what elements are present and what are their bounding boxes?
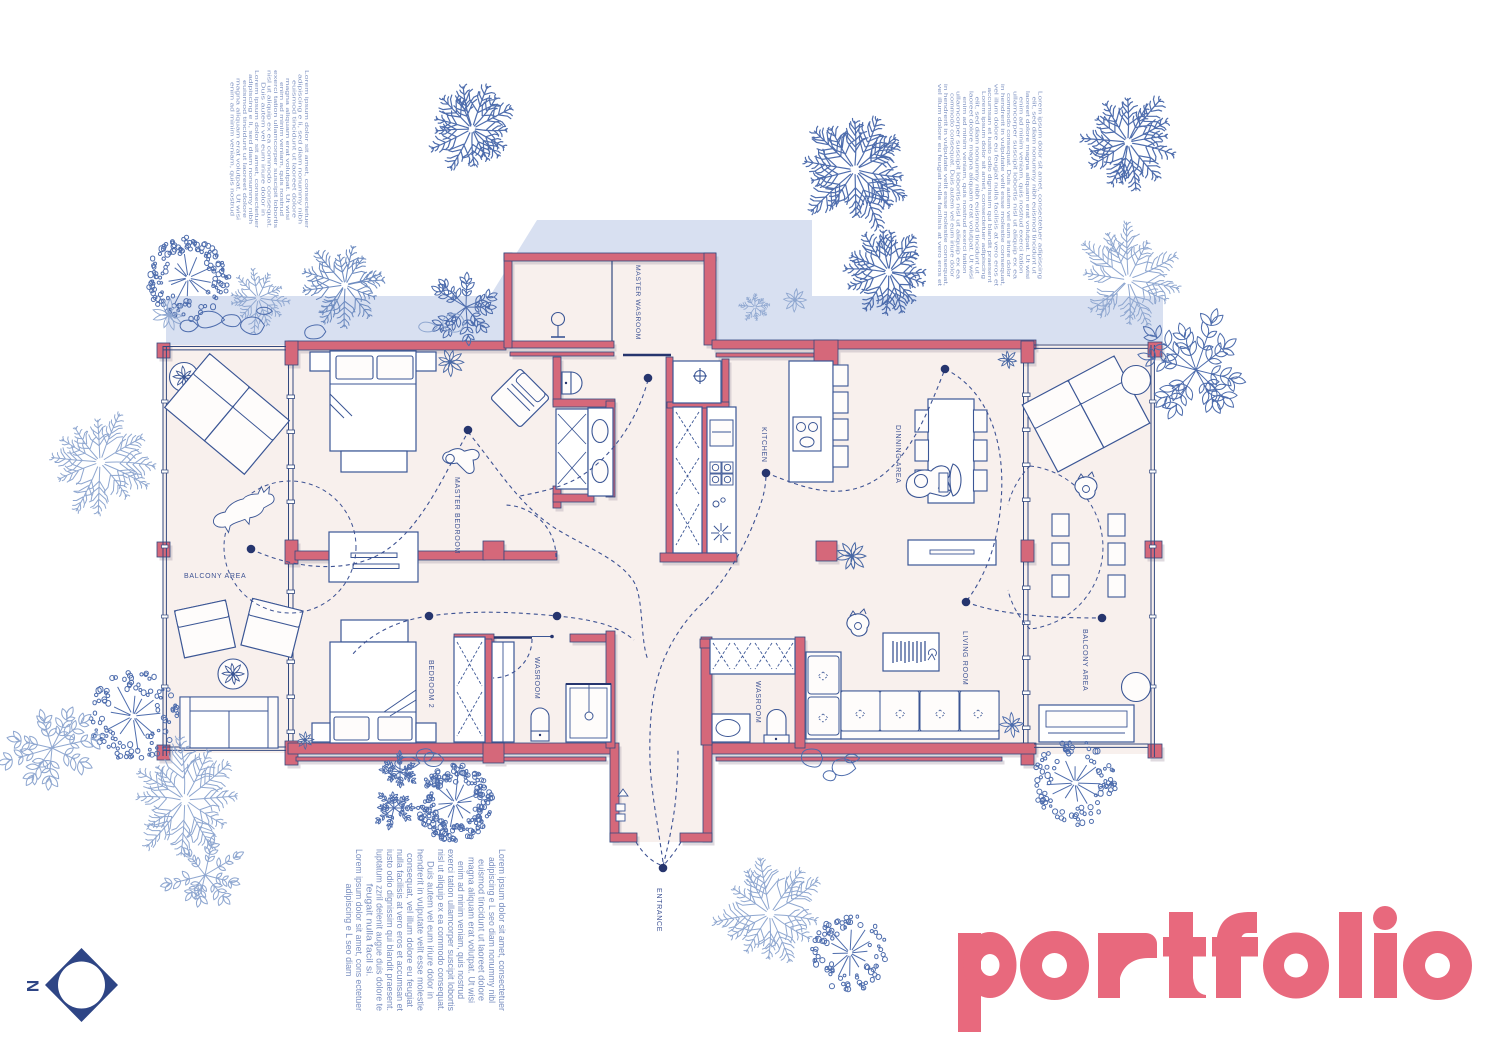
svg-text:consequat, vel illum dolore eu: consequat, vel illum dolore eu feugiat <box>405 853 415 1008</box>
svg-text:magna aliquam erat volutpat. U: magna aliquam erat volutpat. Ut wisi <box>284 78 290 220</box>
svg-text:BEDROOM 2: BEDROOM 2 <box>427 660 434 708</box>
svg-text:Duis autem vel eum iriure dolo: Duis autem vel eum iriure dolor in <box>259 82 265 216</box>
svg-text:commodo consequat. Duis autem: commodo consequat. Duis autem vel eum ir… <box>948 93 954 277</box>
svg-text:enim ad minim veniam, quis nos: enim ad minim veniam, quis nostrud <box>456 861 466 999</box>
svg-text:in hendrerit in vulputate veli: in hendrerit in vulputate velit esse mol… <box>942 84 948 287</box>
svg-text:laoreet dolore magna aliquam e: laoreet dolore magna aliquam erat volutp… <box>967 91 973 279</box>
svg-text:vel illum dolore eu feugiat nu: vel illum dolore eu feugiat nulla facili… <box>993 84 999 287</box>
svg-text:nulla facilisis at vero eros e: nulla facilisis at vero eros et accumsan… <box>395 849 405 1011</box>
svg-text:BALCONY AREA: BALCONY AREA <box>184 573 246 580</box>
svg-text:WASROOM: WASROOM <box>533 657 540 699</box>
svg-text:magna aliquam erat volutpat. U: magna aliquam erat volutpat. Ut wisi <box>235 78 241 220</box>
svg-text:Lorem ipsum dolor sit amet, co: Lorem ipsum dolor sit amet, cons ectetue… <box>354 849 364 1011</box>
svg-text:elit, sed diam nonummy nibh eu: elit, sed diam nonummy nibh euismod tinc… <box>1030 97 1036 275</box>
svg-text:MASTER WASROOM: MASTER WASROOM <box>634 265 641 340</box>
svg-text:MASTER BEDROOM: MASTER BEDROOM <box>453 477 460 554</box>
svg-text:feugait nulla facil si.: feugait nulla facil si. <box>364 884 374 977</box>
svg-text:N: N <box>24 980 43 992</box>
svg-text:enim ad minim veniam, quis nos: enim ad minim veniam, quis nostrud exerc… <box>961 97 967 274</box>
svg-text:ullamcorper suscipit lobortis: ullamcorper suscipit lobortis nisl ut al… <box>955 91 961 279</box>
svg-text:magna aliquam erat volutpat. U: magna aliquam erat volutpat. Ut wisi <box>466 857 476 1003</box>
svg-text:enim ad minim veniam, quis nos: enim ad minim veniam, quis nostrud <box>228 82 234 216</box>
svg-text:Lorem ipsum dolor sit amet, co: Lorem ipsum dolor sit amet, consectetuer… <box>980 91 986 279</box>
svg-text:enim ad minim veniam, quis nos: enim ad minim veniam, quis nostrud <box>278 82 284 216</box>
svg-text:enim ad minim veniam, quis nos: enim ad minim veniam, quis nostrud exerc… <box>1018 97 1024 274</box>
svg-text:commodo consequat. Duis autem: commodo consequat. Duis autem vel eum ir… <box>1005 93 1011 277</box>
svg-text:iusto odio dignissim qui bland: iusto odio dignissim qui blandit praesen… <box>385 849 395 1011</box>
svg-text:Lorem ipsum dolor sit amet, co: Lorem ipsum dolor sit amet, consectetuer… <box>1037 91 1043 279</box>
svg-text:adipiscing e li, sed diam nonu: adipiscing e li, sed diam nonummy nibh <box>297 74 303 224</box>
svg-text:exerci tation ullamcorper susc: exerci tation ullamcorper suscipit lobor… <box>272 70 278 229</box>
svg-text:Lorem ipsum dolor sit amet, co: Lorem ipsum dolor sit amet, consectetuer <box>253 70 259 228</box>
svg-text:KITCHEN: KITCHEN <box>760 427 767 463</box>
svg-text:adipiscing e L seo diam: adipiscing e L seo diam <box>344 884 354 977</box>
svg-text:euismod tincidunt ut laoreet d: euismod tincidunt ut laoreet dolore <box>290 80 296 218</box>
svg-text:ENTRANCE: ENTRANCE <box>655 888 662 932</box>
svg-text:ullamcorper suscipit lobortis: ullamcorper suscipit lobortis nisl ut al… <box>1011 91 1017 279</box>
svg-text:hendrerit in vulputate velit e: hendrerit in vulputate velit esse molest… <box>415 849 425 1011</box>
svg-text:Lorem ipsum dolor sit amet, co: Lorem ipsum dolor sit amet, consectetuer <box>303 70 309 228</box>
svg-text:WASROOM: WASROOM <box>754 681 761 723</box>
svg-text:in hendrerit in vulputate veli: in hendrerit in vulputate velit esse mol… <box>999 84 1005 287</box>
svg-text:adipiscing e L seo diam nonumm: adipiscing e L seo diam nonummy nibl <box>487 857 497 1003</box>
svg-text:BALCONY AREA: BALCONY AREA <box>1081 629 1088 691</box>
svg-text:nisl ut aliquip ex ea commodo: nisl ut aliquip ex ea commodo consequat. <box>266 70 272 228</box>
svg-text:exerci tation ullamcorper susc: exerci tation ullamcorper suscipit lobor… <box>446 849 456 1011</box>
svg-text:accumsan et iusto odio digniss: accumsan et iusto odio dignissim qui bla… <box>986 88 992 284</box>
svg-text:Duis autem vel eum iriure dolo: Duis autem vel eum iriure dolor in <box>426 861 436 999</box>
svg-text:LIVING ROOM: LIVING ROOM <box>961 631 968 685</box>
svg-text:euismod tincidunt ut laoreet d: euismod tincidunt ut laoreet dolore <box>477 859 487 1001</box>
svg-text:luptatum zzril delenit augue d: luptatum zzril delenit augue duis dolore… <box>375 849 385 1011</box>
svg-text:Lorem ipsum dolor sit amet, co: Lorem ipsum dolor sit amet, consectetuer <box>497 849 507 1011</box>
svg-text:elit, sed diam nonummy nibh eu: elit, sed diam nonummy nibh euismod tinc… <box>974 97 980 275</box>
svg-text:laoreet dolore magna aliquam e: laoreet dolore magna aliquam erat volutp… <box>1024 91 1030 279</box>
svg-text:euismod tincidunt ut laoreet d: euismod tincidunt ut laoreet dolore <box>241 80 247 218</box>
svg-text:DINNING AREA: DINNING AREA <box>894 425 901 484</box>
svg-text:nisl ut aliquip ex ea commodo: nisl ut aliquip ex ea commodo consequat. <box>436 849 446 1011</box>
svg-text:adipiscing e li, sed diam nonu: adipiscing e li, sed diam nonummy nibh <box>247 74 253 224</box>
svg-text:vel illum dolore eu feugiat nu: vel illum dolore eu feugiat nulla facili… <box>936 84 942 287</box>
